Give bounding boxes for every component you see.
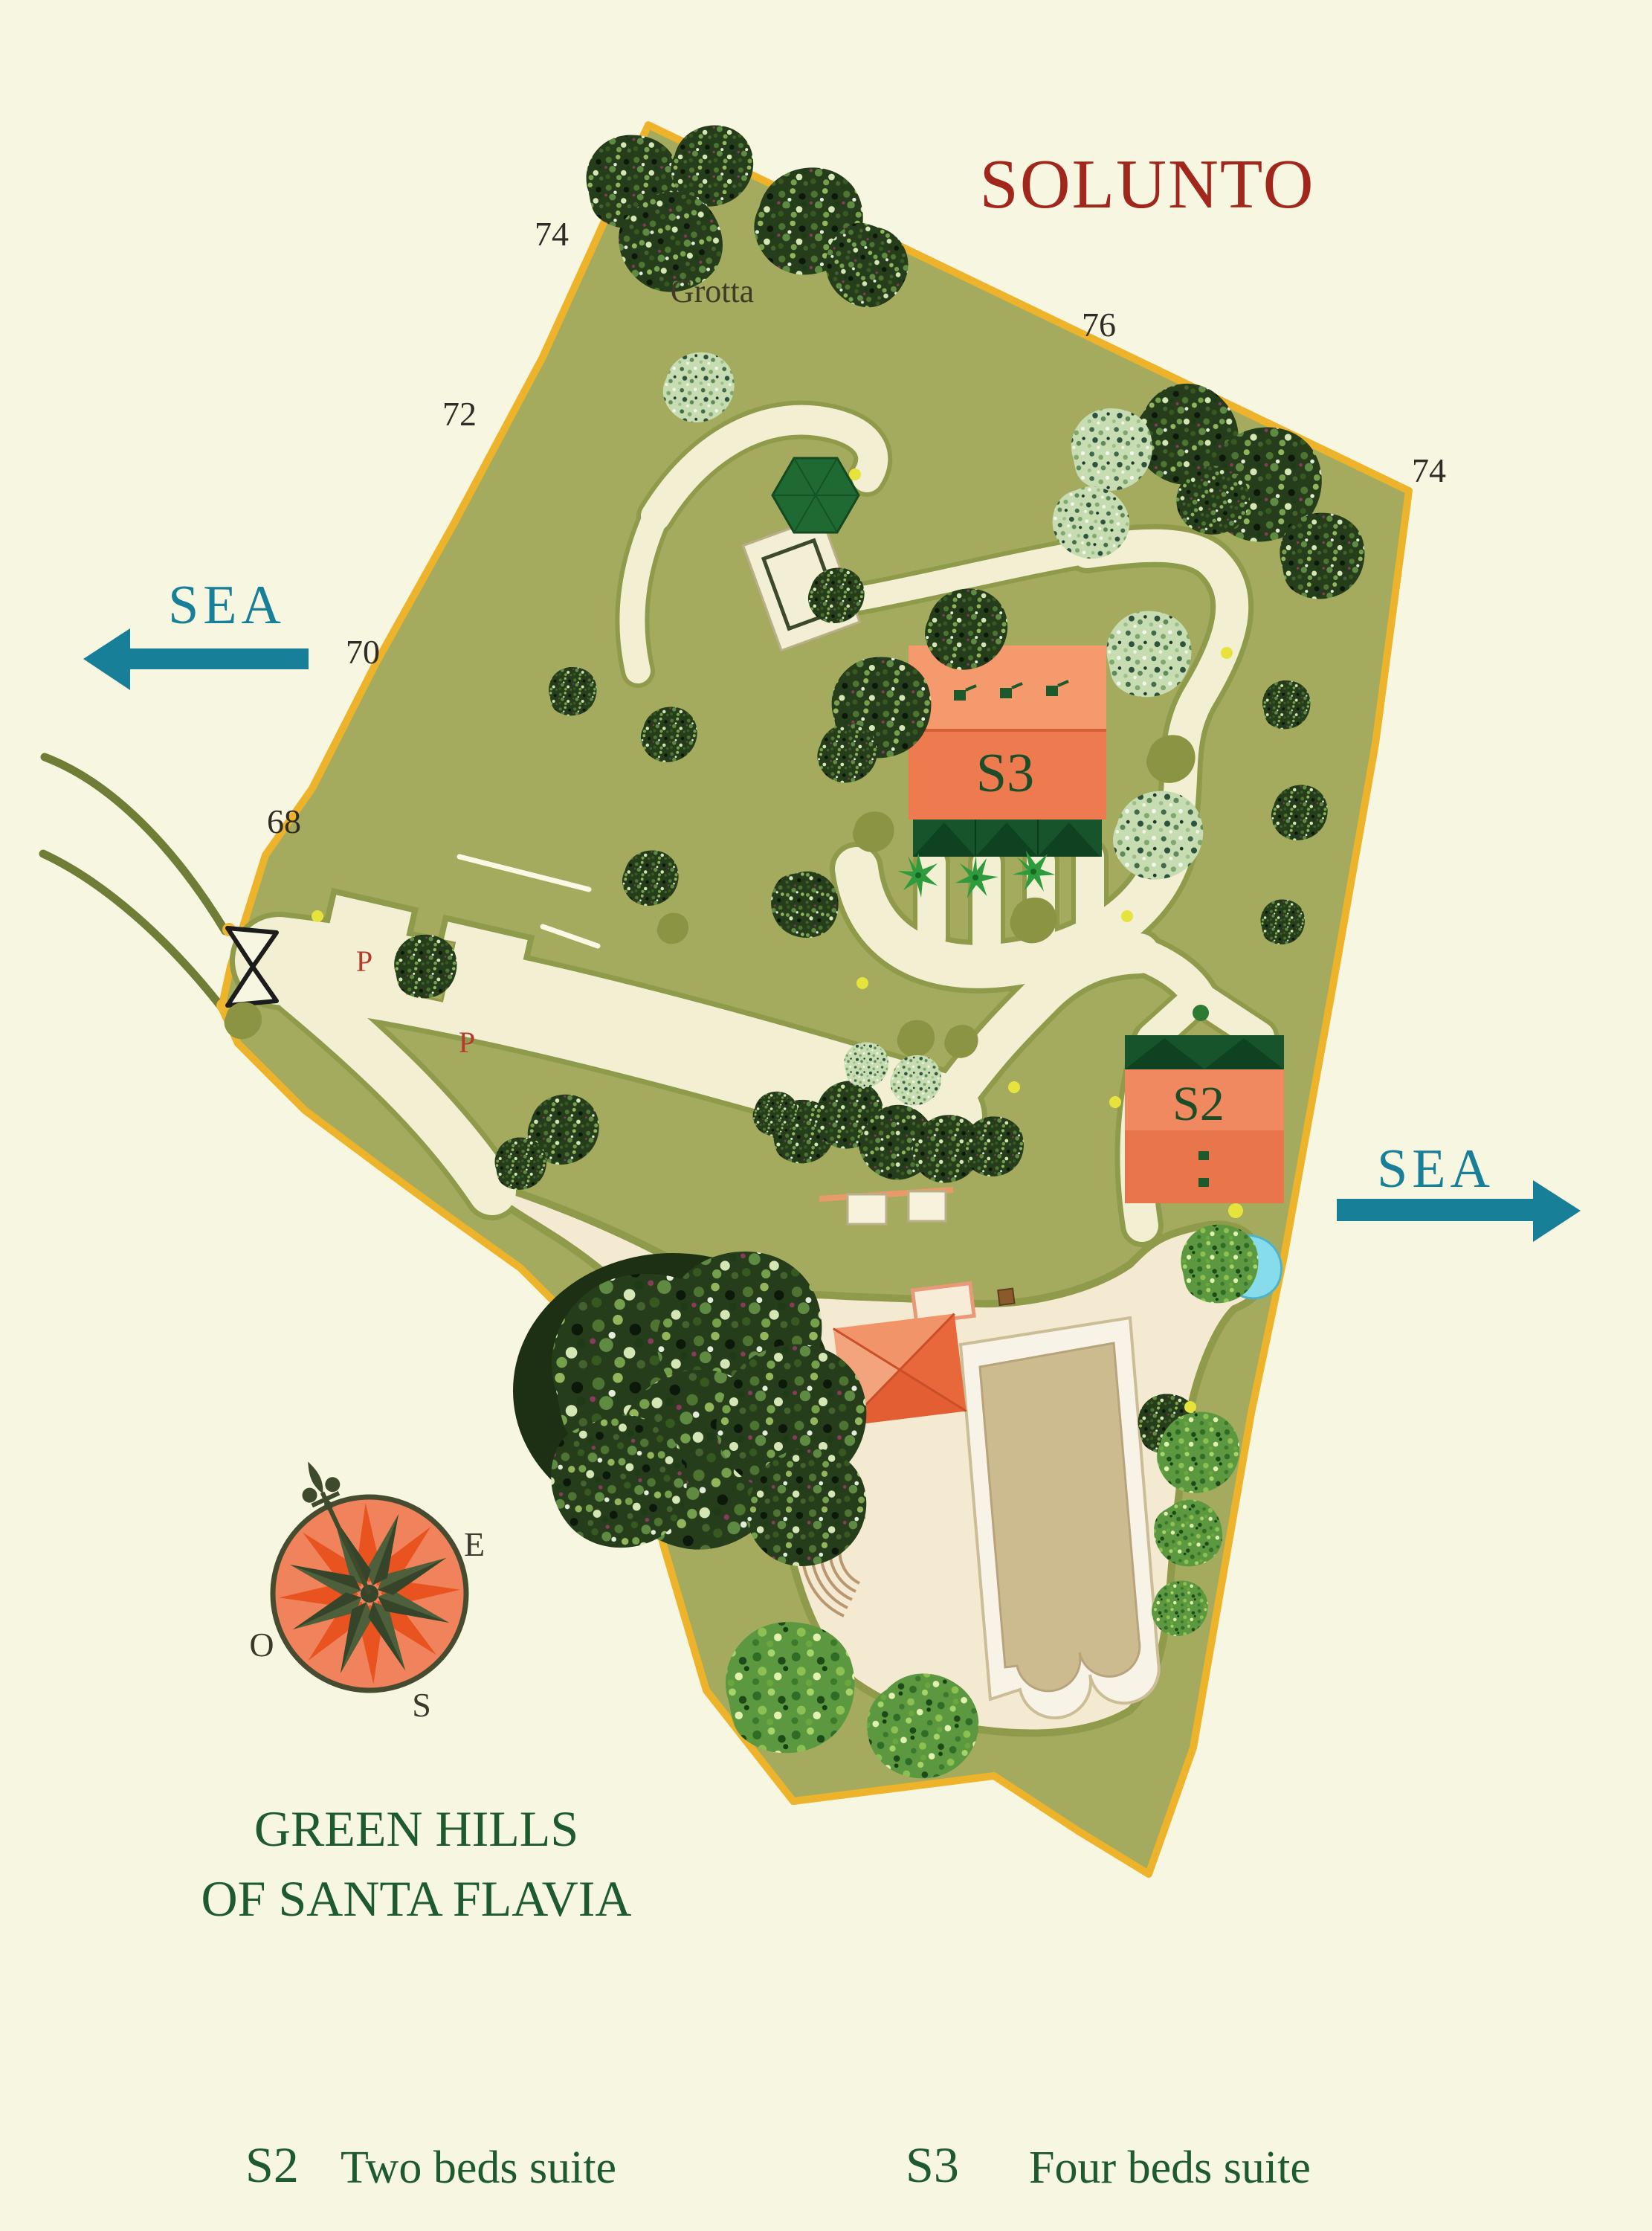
legend-s3-label: Four beds suite xyxy=(1029,2142,1311,2195)
elevation-68: 68 xyxy=(267,802,301,840)
compass-west-label: O xyxy=(249,1626,274,1664)
legend-s2-label: Two beds suite xyxy=(341,2142,616,2195)
site-name-line1: GREEN HILLS xyxy=(112,1794,721,1864)
elevation-74-left: 74 xyxy=(535,215,569,253)
elevation-70: 70 xyxy=(346,633,380,671)
site-plan-page: S3 S2 xyxy=(0,0,1652,2231)
building-s2: S2 xyxy=(1125,1035,1284,1203)
parking-label-1: P xyxy=(356,944,372,978)
building-s3: S3 xyxy=(909,646,1106,857)
elevation-76: 76 xyxy=(1082,306,1116,344)
elevation-74-right: 74 xyxy=(1412,451,1446,489)
island-tree xyxy=(1193,1005,1209,1021)
sea-east-label: SEA xyxy=(1377,1139,1494,1200)
villa-terrace xyxy=(961,1318,1159,1718)
site-name: GREEN HILLS OF SANTA FLAVIA xyxy=(112,1794,721,1934)
legend-s3-code: S3 xyxy=(906,2136,959,2195)
building-s2-label: S2 xyxy=(1172,1077,1225,1131)
legend-s2-code: S2 xyxy=(245,2136,299,2195)
compass-south-label: S xyxy=(412,1686,431,1724)
parking-label-2: P xyxy=(459,1026,475,1059)
map-title: SOLUNTO xyxy=(972,144,1322,225)
building-s3-label: S3 xyxy=(976,743,1034,804)
grotta-label: Grotta xyxy=(671,273,754,309)
site-name-line2: OF SANTA FLAVIA xyxy=(112,1864,721,1934)
elevation-72: 72 xyxy=(442,395,477,433)
sea-west-label: SEA xyxy=(168,575,285,636)
compass-east-label: E xyxy=(464,1525,485,1563)
